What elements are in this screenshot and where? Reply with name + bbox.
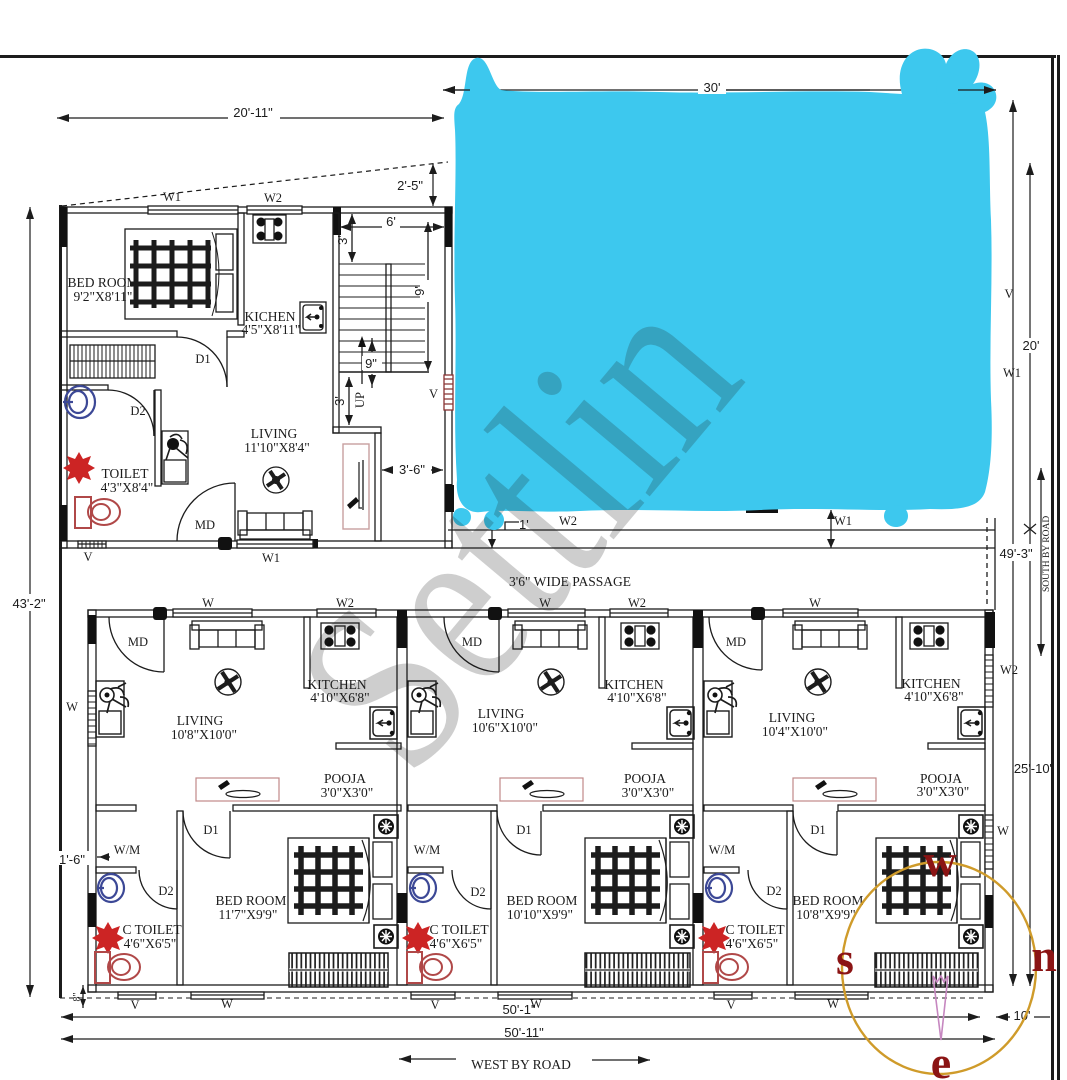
- svg-text:W: W: [221, 997, 233, 1011]
- svg-text:6': 6': [386, 214, 396, 229]
- svg-text:V: V: [1004, 287, 1013, 301]
- svg-text:V: V: [130, 998, 139, 1012]
- svg-text:D2: D2: [470, 885, 485, 899]
- svg-text:49'-3": 49'-3": [999, 546, 1033, 561]
- svg-text:1'-6": 1'-6": [59, 852, 85, 867]
- svg-text:4'6"X6'5": 4'6"X6'5": [430, 936, 483, 951]
- svg-text:4'6"X6'5": 4'6"X6'5": [726, 936, 779, 951]
- svg-text:POOJA: POOJA: [324, 771, 366, 786]
- svg-text:W: W: [809, 596, 821, 610]
- svg-text:10'10"X9'9": 10'10"X9'9": [507, 907, 573, 922]
- svg-text:e: e: [931, 1037, 951, 1080]
- svg-text:W: W: [530, 997, 542, 1011]
- svg-text:4'3"X8'4": 4'3"X8'4": [101, 480, 154, 495]
- svg-text:SOUTH BY ROAD: SOUTH BY ROAD: [1042, 516, 1052, 592]
- svg-text:W2: W2: [264, 191, 282, 205]
- svg-text:BED ROOM: BED ROOM: [216, 893, 287, 908]
- svg-text:25'-10": 25'-10": [1014, 761, 1055, 776]
- svg-text:UP: UP: [353, 392, 367, 408]
- svg-text:20'-11": 20'-11": [233, 105, 273, 120]
- svg-text:20': 20': [1023, 338, 1040, 353]
- svg-text:4'10"X6'8": 4'10"X6'8": [607, 690, 666, 705]
- svg-text:11'7"X9'9": 11'7"X9'9": [219, 907, 278, 922]
- svg-text:LIVING: LIVING: [177, 713, 224, 728]
- svg-text:W/M: W/M: [414, 843, 440, 857]
- svg-text:W1: W1: [1003, 366, 1021, 380]
- svg-text:3'0"X3'0": 3'0"X3'0": [622, 785, 675, 800]
- svg-text:10'4"X10'0": 10'4"X10'0": [762, 724, 828, 739]
- svg-text:V: V: [430, 998, 439, 1012]
- svg-text:10'8"X9'9": 10'8"X9'9": [796, 907, 855, 922]
- svg-text:W/M: W/M: [114, 843, 140, 857]
- svg-text:C TOILET: C TOILET: [429, 922, 489, 937]
- svg-text:W: W: [202, 596, 214, 610]
- svg-text:3': 3': [335, 235, 350, 245]
- svg-text:LIVING: LIVING: [251, 426, 298, 441]
- svg-text:MD: MD: [128, 635, 148, 649]
- svg-text:D2: D2: [158, 884, 173, 898]
- svg-text:W: W: [66, 700, 78, 714]
- svg-text:TOILET: TOILET: [102, 466, 150, 481]
- svg-text:4'10"X6'8": 4'10"X6'8": [904, 689, 963, 704]
- svg-text:POOJA: POOJA: [624, 771, 666, 786]
- svg-text:9'2"X8'11": 9'2"X8'11": [74, 289, 133, 304]
- svg-text:3': 3': [332, 396, 347, 406]
- svg-text:C TOILET: C TOILET: [122, 922, 182, 937]
- svg-text:D1: D1: [203, 823, 218, 837]
- svg-text:9': 9': [412, 286, 427, 296]
- svg-text:BED ROOM: BED ROOM: [507, 893, 578, 908]
- svg-text:C TOILET: C TOILET: [725, 922, 785, 937]
- svg-text:50'-11": 50'-11": [504, 1025, 544, 1040]
- svg-text:s: s: [836, 933, 854, 984]
- svg-text:8": 8": [72, 992, 83, 1001]
- svg-text:n: n: [1031, 930, 1057, 981]
- svg-text:30': 30': [704, 80, 721, 95]
- svg-text:D1: D1: [195, 352, 210, 366]
- svg-text:43'-2": 43'-2": [12, 596, 46, 611]
- svg-text:MD: MD: [726, 635, 746, 649]
- svg-text:3'0"X3'0": 3'0"X3'0": [321, 785, 374, 800]
- svg-text:V: V: [429, 387, 438, 401]
- svg-text:4'6"X6'5": 4'6"X6'5": [124, 936, 177, 951]
- svg-text:w: w: [923, 835, 956, 886]
- svg-text:11'10"X8'4": 11'10"X8'4": [244, 440, 310, 455]
- svg-text:W1: W1: [163, 190, 181, 204]
- svg-text:4'5"X8'11": 4'5"X8'11": [242, 322, 301, 337]
- svg-text:W/M: W/M: [709, 843, 735, 857]
- svg-text:BED ROOM: BED ROOM: [793, 893, 864, 908]
- svg-text:V: V: [726, 998, 735, 1012]
- svg-text:W2: W2: [1000, 663, 1018, 677]
- svg-text:2'-5": 2'-5": [397, 178, 423, 193]
- svg-text:MD: MD: [195, 518, 215, 532]
- svg-text:W1: W1: [834, 514, 852, 528]
- svg-text:W: W: [997, 824, 1009, 838]
- svg-text:10'8"X10'0": 10'8"X10'0": [171, 727, 237, 742]
- svg-text:W: W: [827, 997, 839, 1011]
- svg-text:9": 9": [365, 356, 377, 371]
- svg-text:BED ROOM: BED ROOM: [68, 275, 139, 290]
- svg-text:D2: D2: [766, 884, 781, 898]
- svg-text:WEST BY ROAD: WEST BY ROAD: [471, 1057, 571, 1072]
- svg-text:W1: W1: [262, 551, 280, 565]
- svg-text:D1: D1: [516, 823, 531, 837]
- svg-text:D2: D2: [130, 404, 145, 418]
- svg-text:3'0"X3'0": 3'0"X3'0": [917, 784, 970, 799]
- svg-text:LIVING: LIVING: [769, 710, 816, 725]
- svg-text:D1: D1: [810, 823, 825, 837]
- svg-text:V: V: [83, 550, 92, 564]
